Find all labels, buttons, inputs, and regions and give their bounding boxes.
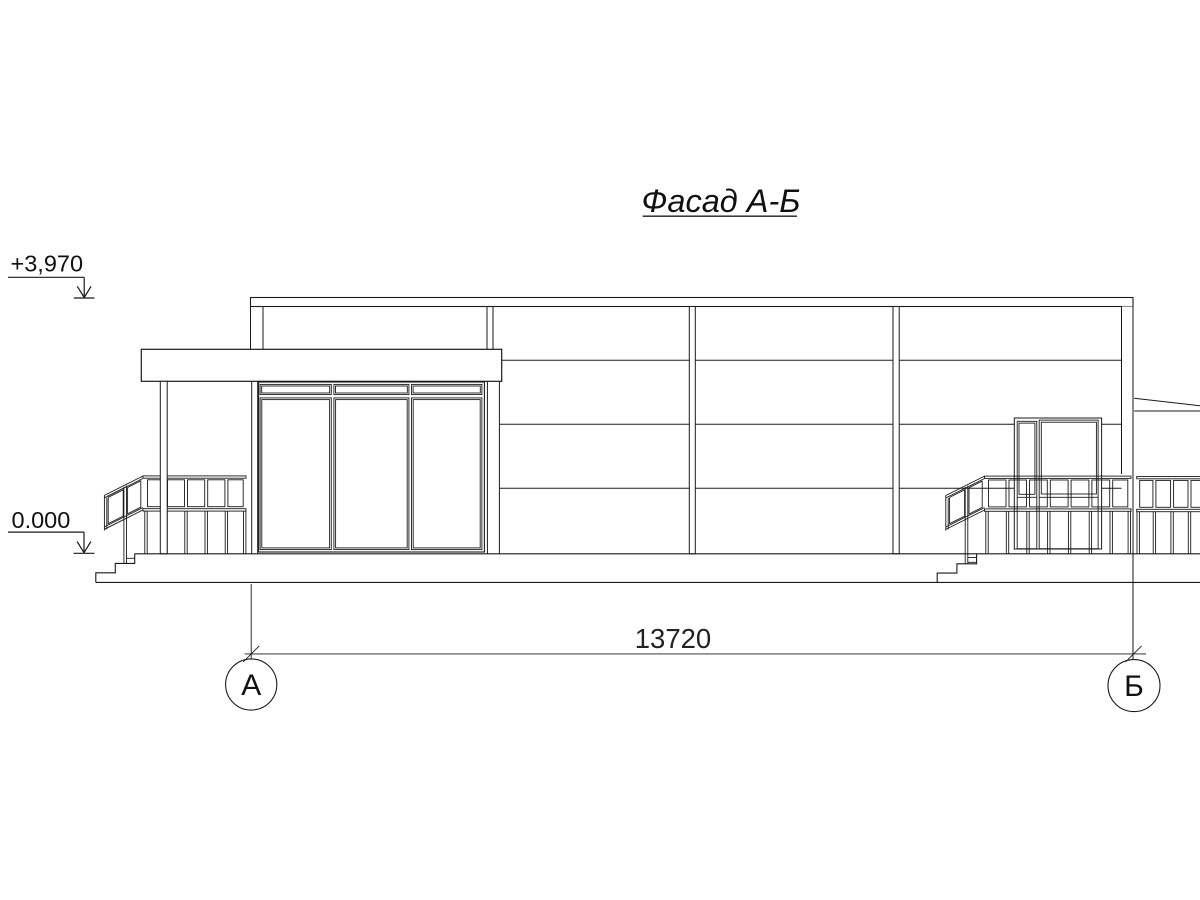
svg-text:Фасад А-Б: Фасад А-Б xyxy=(642,183,801,219)
svg-text:13720: 13720 xyxy=(635,623,711,654)
svg-text:+3,970: +3,970 xyxy=(11,250,84,276)
svg-text:Б: Б xyxy=(1124,670,1144,703)
svg-text:А: А xyxy=(241,669,261,702)
svg-text:0.000: 0.000 xyxy=(12,507,71,533)
